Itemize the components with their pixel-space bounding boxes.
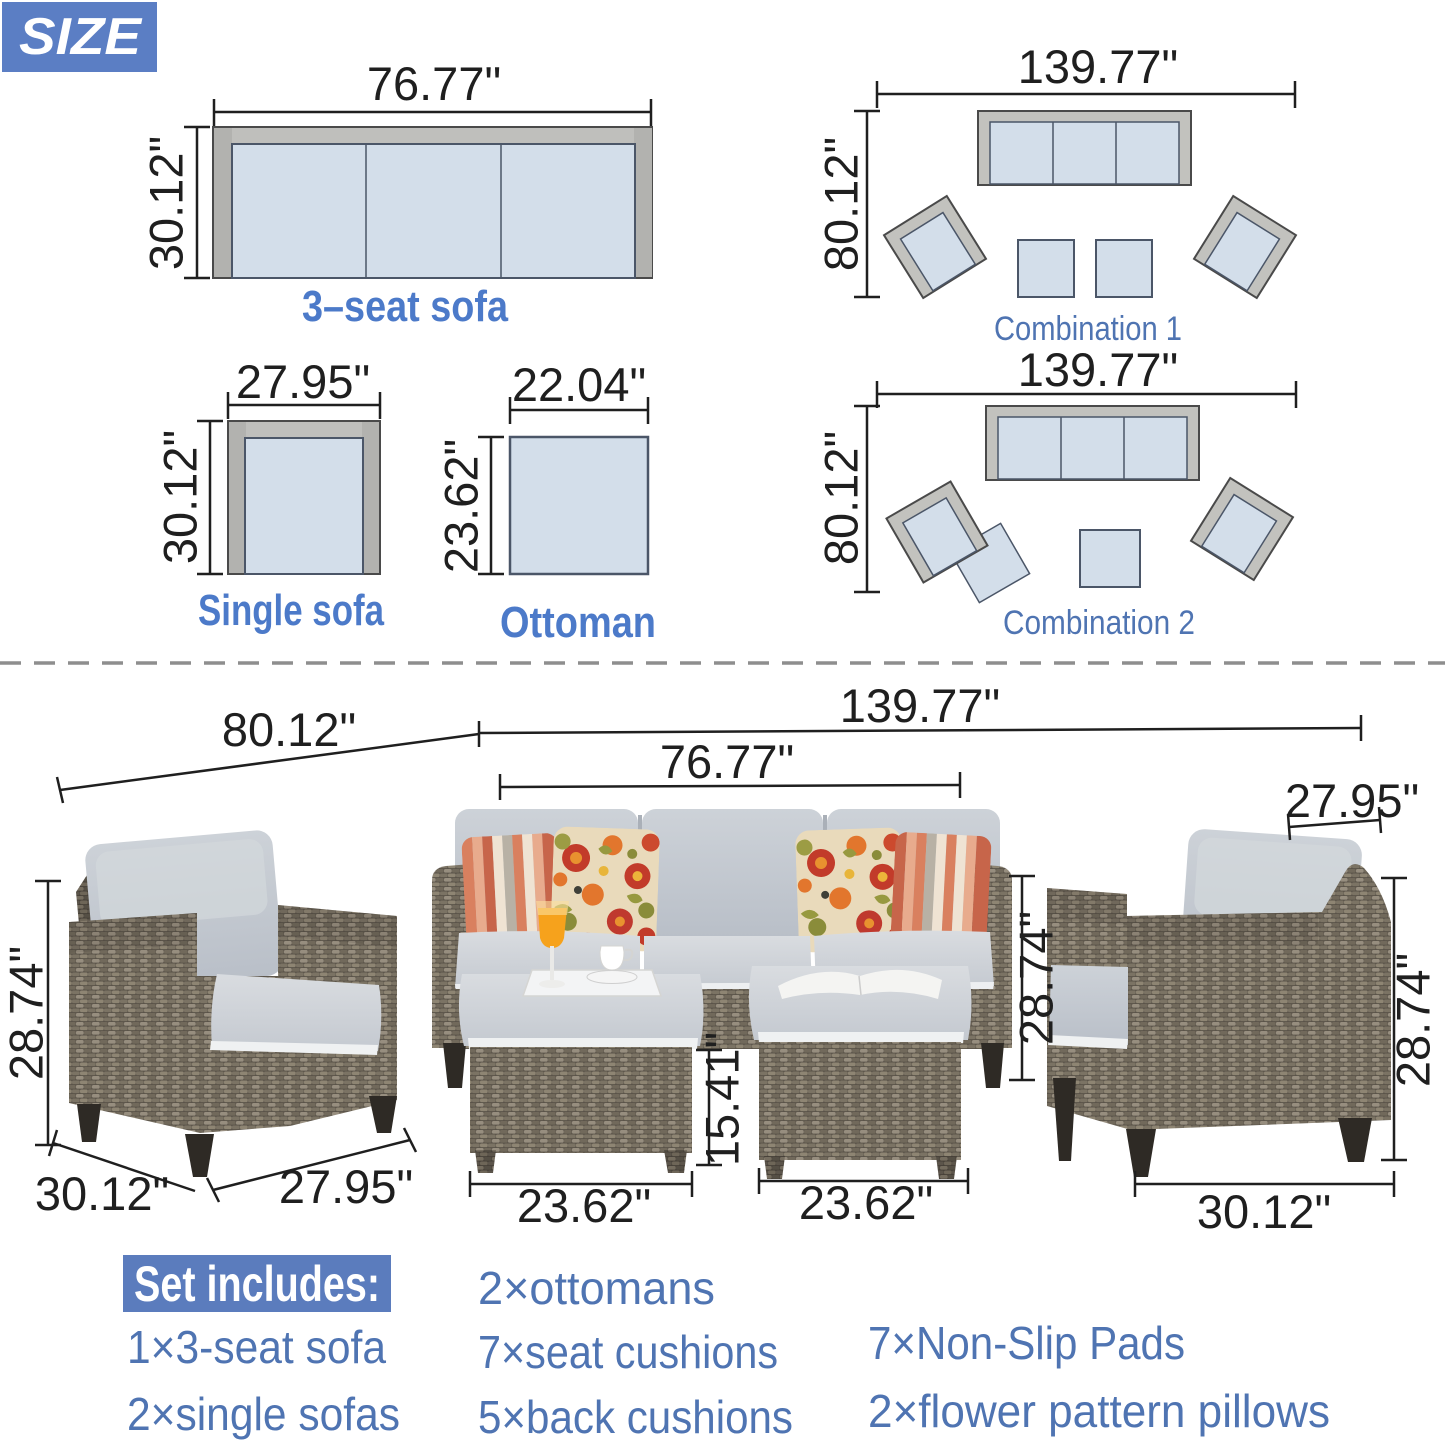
svg-text:139.77": 139.77" <box>840 679 1000 732</box>
svg-text:2×single sofas: 2×single sofas <box>127 1388 400 1440</box>
svg-text:30.12": 30.12" <box>153 430 206 564</box>
svg-text:80.12": 80.12" <box>814 137 867 271</box>
svg-text:27.95": 27.95" <box>279 1160 413 1213</box>
svg-text:80.12": 80.12" <box>222 703 356 756</box>
svg-text:5×back cushions: 5×back cushions <box>478 1391 793 1443</box>
svg-text:22.04": 22.04" <box>512 358 646 411</box>
svg-text:30.12": 30.12" <box>139 136 192 270</box>
svg-text:7×seat cushions: 7×seat cushions <box>478 1326 778 1378</box>
svg-text:80.12": 80.12" <box>814 431 867 565</box>
svg-text:28.74": 28.74" <box>1009 911 1062 1045</box>
svg-text:27.95": 27.95" <box>236 355 370 408</box>
svg-text:23.62": 23.62" <box>434 439 487 573</box>
svg-text:139.77": 139.77" <box>1018 343 1178 396</box>
svg-text:SIZE: SIZE <box>19 8 142 66</box>
svg-text:28.74": 28.74" <box>1386 953 1439 1087</box>
svg-text:1×3-seat sofa: 1×3-seat sofa <box>127 1321 386 1373</box>
svg-text:28.74": 28.74" <box>0 946 52 1080</box>
svg-text:2×flower pattern pillows: 2×flower pattern pillows <box>868 1385 1330 1437</box>
svg-text:7×Non-Slip Pads: 7×Non-Slip Pads <box>868 1317 1185 1369</box>
svg-text:15.41": 15.41" <box>695 1032 748 1166</box>
svg-text:76.77": 76.77" <box>367 57 501 110</box>
svg-text:2×ottomans: 2×ottomans <box>478 1262 715 1314</box>
svg-text:3–seat sofa: 3–seat sofa <box>302 282 508 331</box>
svg-text:27.95": 27.95" <box>1285 774 1419 827</box>
svg-text:23.62": 23.62" <box>517 1179 651 1232</box>
svg-text:30.12": 30.12" <box>1197 1185 1331 1238</box>
svg-text:Single sofa: Single sofa <box>198 586 384 635</box>
svg-text:Combination 2: Combination 2 <box>1003 604 1195 642</box>
svg-text:30.12": 30.12" <box>35 1167 169 1220</box>
svg-text:Set includes:: Set includes: <box>134 1256 380 1312</box>
svg-text:Ottoman: Ottoman <box>500 598 656 647</box>
svg-text:139.77": 139.77" <box>1018 40 1178 93</box>
svg-text:76.77": 76.77" <box>660 735 794 788</box>
svg-text:23.62": 23.62" <box>799 1176 933 1229</box>
